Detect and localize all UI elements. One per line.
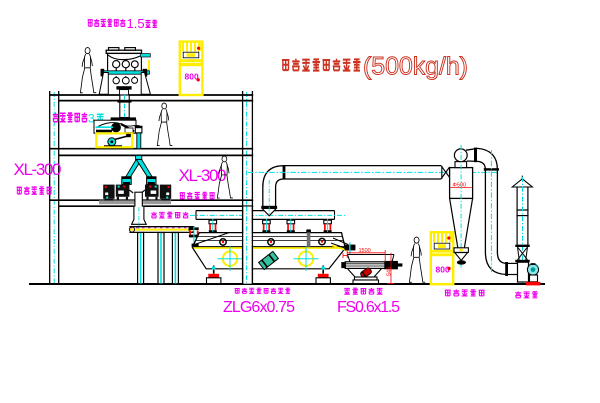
svg-text:ZLG6x0.75: ZLG6x0.75 xyxy=(223,299,295,316)
svg-text:FS0.6x1.5: FS0.6x1.5 xyxy=(337,299,400,316)
svg-text:545: 545 xyxy=(387,267,393,276)
svg-text:1500: 1500 xyxy=(359,248,371,254)
svg-text:XL-300: XL-300 xyxy=(14,160,62,179)
svg-text:1.5: 1.5 xyxy=(127,16,145,31)
svg-text:(500kg/h): (500kg/h) xyxy=(363,53,468,81)
svg-text:Φ500: Φ500 xyxy=(453,183,467,189)
